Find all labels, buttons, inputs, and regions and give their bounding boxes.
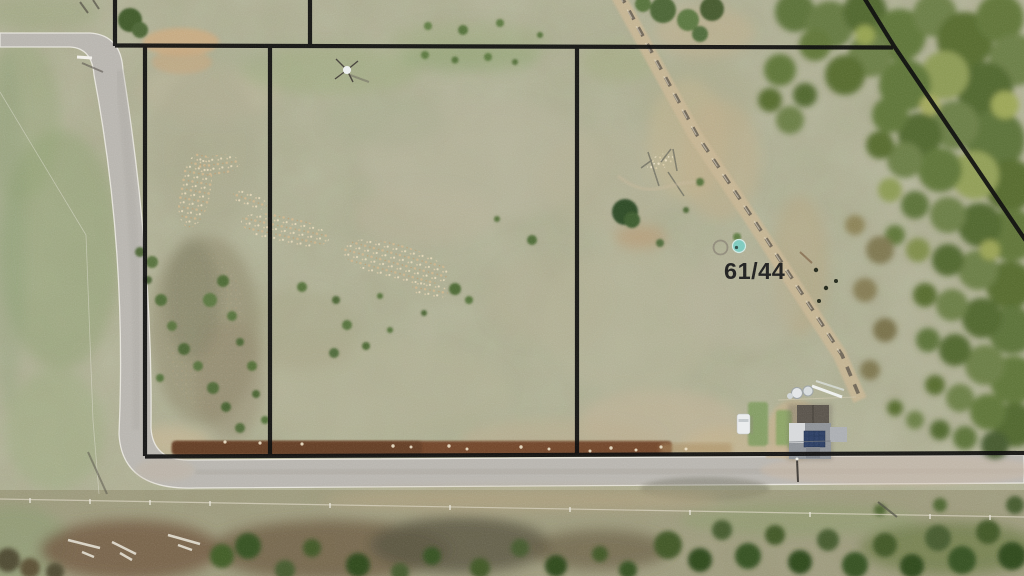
photo-grain <box>0 0 1024 576</box>
aerial-photo: 61/44 <box>0 0 1024 576</box>
aerial-photo-canvas: 61/44 <box>0 0 1024 576</box>
